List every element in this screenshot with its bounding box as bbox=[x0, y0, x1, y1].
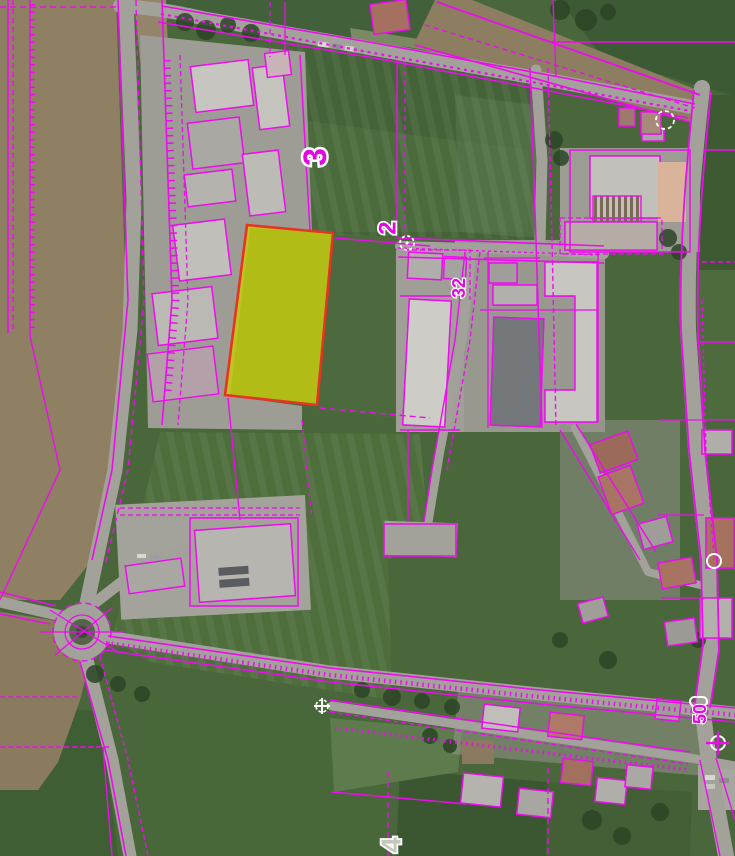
parcel-number-2-label: 2 bbox=[375, 221, 402, 234]
map-viewport[interactable]: 3 2 32 50 4 bbox=[0, 0, 735, 856]
map-canvas[interactable]: 3 2 32 50 4 bbox=[0, 0, 735, 856]
house-number-32-label: 32 bbox=[449, 278, 469, 298]
courtyard bbox=[658, 162, 686, 222]
parcel-number-4-label: 4 bbox=[376, 837, 407, 853]
parcel-number-3-label: 3 bbox=[297, 148, 333, 166]
house-number-50-label: 50 bbox=[690, 704, 710, 724]
